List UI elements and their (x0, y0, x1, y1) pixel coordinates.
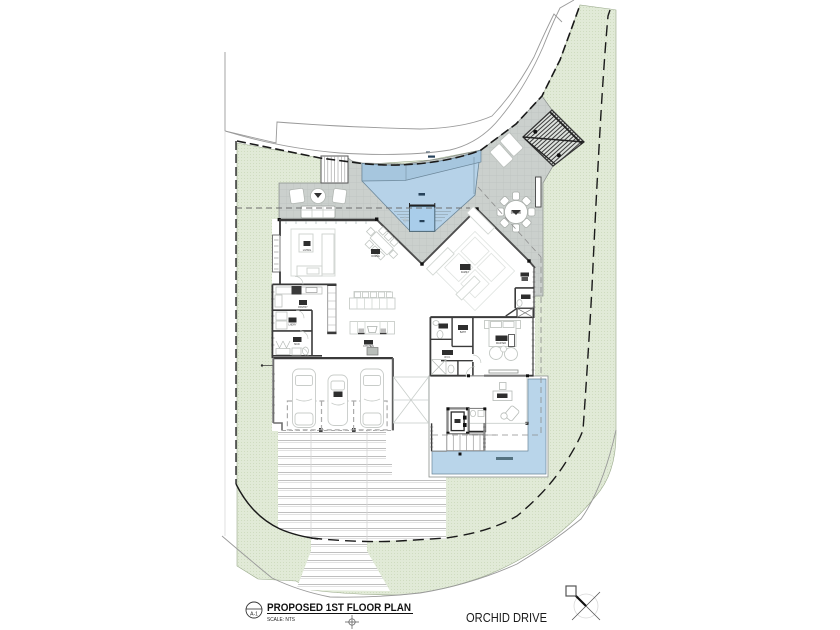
svg-text:MUD: MUD (294, 343, 300, 346)
svg-text:LIVING: LIVING (303, 248, 312, 252)
svg-text:A-1: A-1 (250, 612, 258, 618)
svg-text:SCALE: NTS: SCALE: NTS (267, 617, 295, 623)
svg-text:W.I.C.: W.I.C. (444, 356, 451, 359)
svg-text:PROPOSED 1ST FLOOR PLAN: PROPOSED 1ST FLOOR PLAN (267, 602, 411, 614)
svg-text:MASTER: MASTER (496, 342, 506, 345)
svg-text:BATH: BATH (460, 331, 466, 334)
svg-text:DINING: DINING (371, 255, 380, 258)
svg-text:PANTRY: PANTRY (298, 306, 308, 309)
svg-text:FAMILY: FAMILY (461, 271, 470, 274)
svg-text:LNDRY: LNDRY (288, 324, 296, 327)
svg-text:ORCHID DRIVE: ORCHID DRIVE (466, 611, 547, 625)
